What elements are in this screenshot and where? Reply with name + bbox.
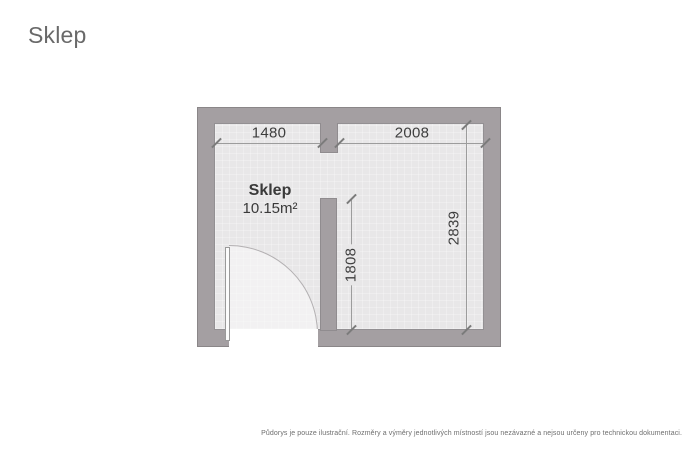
room-label: Sklep 10.15m² [242, 182, 297, 218]
door-leaf [225, 247, 230, 341]
floorplan: 1480 2008 2839 1808 Sklep 10.15m² [197, 107, 501, 347]
room-name: Sklep [242, 182, 297, 200]
wall-partition [320, 198, 337, 331]
footer-disclaimer: Půdorys je pouze ilustrační. Rozměry a v… [2, 430, 682, 437]
dimension-line-top-right [339, 143, 485, 144]
door-opening [229, 329, 318, 348]
dimension-line-right [466, 125, 467, 330]
page-title: Sklep [28, 22, 87, 49]
dimension-line-top-left [216, 143, 322, 144]
dimension-value-top-left: 1480 [252, 125, 287, 142]
dimension-value-top-right: 2008 [395, 125, 430, 142]
dimension-value-inner: 1808 [343, 245, 360, 286]
dimension-value-right: 2839 [446, 211, 463, 246]
room-area: 10.15m² [242, 200, 297, 218]
